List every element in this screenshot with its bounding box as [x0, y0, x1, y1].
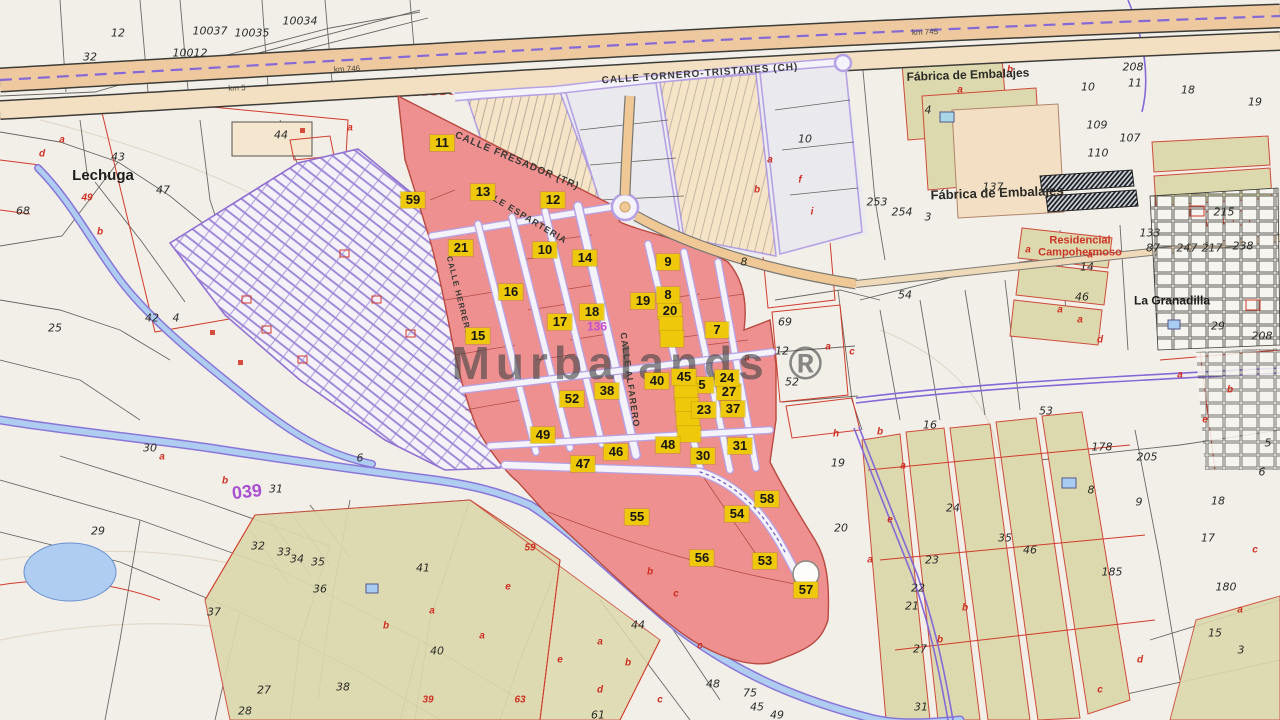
parcel-number: 34 — [290, 553, 304, 566]
subparcel-letter: b — [647, 567, 653, 578]
km-marker-label: km 746 — [334, 64, 361, 74]
parcel-label[interactable]: 54 — [725, 506, 749, 522]
place-label: Lechuga — [72, 168, 134, 184]
subparcel-letter: 49 — [81, 193, 92, 204]
parcel-label[interactable]: 21 — [449, 240, 473, 256]
parcel-label[interactable]: 37 — [721, 401, 745, 417]
subparcel-letter: c — [1097, 685, 1103, 696]
parcel-number: 16 — [923, 419, 937, 432]
parcel-number: 25 — [48, 322, 62, 335]
km-marker-label: km 5 — [228, 83, 246, 93]
subparcel-letter: c — [697, 641, 703, 652]
subparcel-letter: a — [767, 155, 773, 166]
parcel-label[interactable]: 58 — [755, 491, 779, 507]
parcel-label[interactable]: 15 — [466, 328, 490, 344]
parcel-number: 10034 — [283, 15, 318, 28]
subparcel-letter: 39 — [422, 695, 433, 706]
subparcel-letter: a — [479, 631, 485, 642]
parcel-label[interactable]: 13 — [471, 184, 495, 200]
subparcel-letter: a — [900, 461, 906, 472]
parcel-label[interactable]: 16 — [499, 284, 523, 300]
subparcel-letter: e — [505, 582, 511, 593]
parcel-number: 48 — [706, 678, 720, 691]
parcel-number: 208 — [1252, 330, 1273, 343]
parcel-number: 6 — [357, 452, 364, 465]
parcel-number: 31 — [269, 483, 283, 496]
parcel-number: 33 — [277, 546, 291, 559]
subparcel-letter: e — [887, 515, 893, 526]
parcel-label[interactable]: 47 — [571, 456, 595, 472]
subparcel-letter: b — [1227, 385, 1233, 396]
parcel-number: 5 — [1265, 437, 1272, 450]
subparcel-letter: i — [811, 207, 814, 218]
parcel-number: 11 — [1128, 77, 1142, 90]
parcel-number: 18 — [1211, 495, 1225, 508]
parcel-label[interactable]: 52 — [560, 391, 584, 407]
parcel-number: 27 — [913, 643, 927, 656]
parcel-label[interactable]: 53 — [753, 553, 777, 569]
parcel-label[interactable]: 17 — [548, 314, 572, 330]
subparcel-letter: c — [657, 695, 663, 706]
parcel-number: 3 — [925, 211, 932, 224]
parcel-number: 49 — [770, 709, 784, 720]
parcel-label[interactable]: 31 — [728, 438, 752, 454]
subparcel-letter: b — [937, 635, 943, 646]
subparcel-letter: b — [625, 658, 631, 669]
parcel-number: 69 — [778, 316, 792, 329]
parcel-number: 133 — [1140, 227, 1161, 240]
cadastral-map[interactable]: CALLE TORNERO-TRISTANES (CH)CALLE FRESAD… — [0, 0, 1280, 720]
parcel-label[interactable]: 19 — [631, 293, 655, 309]
parcel-number: 215 — [1214, 206, 1235, 219]
parcel-number: 10037 — [193, 25, 228, 38]
parcel-number: 28 — [238, 705, 252, 718]
parcel-number: 10035 — [235, 27, 270, 40]
parcel-number: 6 — [1259, 466, 1266, 479]
parcel-number: 10 — [1081, 81, 1095, 94]
parcel-number: 110 — [1088, 147, 1109, 160]
parcel-number: 205 — [1137, 451, 1158, 464]
parcel-number: 3 — [1238, 644, 1245, 657]
subparcel-letter: b — [877, 427, 883, 438]
parcel-number: 23 — [925, 554, 939, 567]
parcel-number: 47 — [156, 184, 170, 197]
parcel-label[interactable]: 12 — [541, 192, 565, 208]
parcel-number: 42 — [145, 312, 159, 325]
parcel-number: 107 — [1120, 132, 1141, 145]
parcel-number: 18 — [1181, 84, 1195, 97]
subparcel-letter: a — [347, 123, 353, 134]
parcel-number: 40 — [430, 645, 444, 658]
subparcel-letter: a — [1025, 245, 1031, 256]
subparcel-letter: b — [962, 603, 968, 614]
subparcel-letter: f — [798, 175, 801, 186]
parcel-number: 44 — [631, 619, 645, 632]
km-marker-label: km 745 — [912, 27, 939, 37]
parcel-number: 31 — [914, 701, 928, 714]
parcel-number: 44 — [274, 129, 288, 142]
subparcel-letter: a — [867, 555, 873, 566]
parcel-label[interactable]: 30 — [691, 448, 715, 464]
parcel-number: 35 — [311, 556, 325, 569]
parcel-label[interactable]: 10 — [533, 242, 557, 258]
parcel-label[interactable]: 11 — [430, 135, 454, 151]
parcel-number: 21 — [905, 600, 919, 613]
parcel-number: 24 — [946, 502, 960, 515]
parcel-label[interactable]: 14 — [573, 250, 597, 266]
parcel-label[interactable]: 24 — [715, 370, 739, 386]
parcel-number: 217 — [1202, 242, 1223, 255]
parcel-label[interactable]: 46 — [604, 444, 628, 460]
parcel-number: 4 — [173, 312, 180, 325]
parcel-label[interactable]: 40 — [645, 373, 669, 389]
parcel-number: 32 — [83, 51, 97, 64]
parcel-label[interactable]: 45 — [672, 369, 696, 385]
parcel-number: 253 — [867, 196, 888, 209]
subparcel-letter: e — [557, 655, 563, 666]
parcel-number: 53 — [1039, 405, 1053, 418]
parcel-number: 178 — [1092, 441, 1113, 454]
parcel-number: 4 — [925, 104, 932, 117]
subparcel-letter: b — [97, 227, 103, 238]
parcel-number: 46 — [1023, 544, 1037, 557]
parcel-label[interactable]: 38 — [595, 383, 619, 399]
parcel-label[interactable]: 57 — [794, 582, 818, 598]
parcel-number: 19 — [831, 457, 845, 470]
place-label: Residencial Campohermoso — [1038, 235, 1122, 258]
parcel-number: 68 — [16, 205, 30, 218]
parcel-label[interactable]: 23 — [692, 402, 716, 418]
parcel-number: 43 — [111, 151, 125, 164]
subparcel-letter: d — [1097, 335, 1103, 346]
parcel-number: 45 — [750, 701, 764, 714]
parcel-number: 14 — [1080, 261, 1094, 274]
subparcel-letter: d — [597, 685, 603, 696]
subparcel-letter: 59 — [524, 543, 535, 554]
parcel-number: 36 — [313, 583, 327, 596]
place-label: La Granadilla — [1134, 295, 1210, 308]
subparcel-letter: a — [1177, 370, 1183, 381]
parcel-number: 27 — [257, 684, 271, 697]
subparcel-letter: a — [429, 606, 435, 617]
parcel-number: 109 — [1087, 119, 1108, 132]
parcel-number: 10 — [798, 133, 812, 146]
parcel-number: 22 — [911, 582, 925, 595]
watermark: Murbalands ® — [452, 336, 829, 390]
subparcel-letter: e — [1202, 415, 1208, 426]
parcel-number: 208 — [1123, 61, 1144, 74]
parcel-number: 9 — [1136, 496, 1143, 509]
parcel-number: 17 — [1201, 532, 1215, 545]
subparcel-letter: a — [1077, 315, 1083, 326]
subparcel-letter: c — [849, 347, 855, 358]
parcel-number: 32 — [251, 540, 265, 553]
subparcel-letter: b — [383, 621, 389, 632]
subparcel-letter: h — [833, 429, 839, 440]
subparcel-letter: a — [59, 135, 65, 146]
subparcel-letter: 63 — [514, 695, 525, 706]
parcel-number: 38 — [336, 681, 350, 694]
parcel-number: 46 — [1075, 291, 1089, 304]
subparcel-letter: c — [1252, 545, 1258, 556]
parcel-label[interactable]: 49 — [531, 427, 555, 443]
subparcel-letter: a — [957, 85, 963, 96]
subparcel-letter: a — [159, 452, 165, 463]
parcel-number: 61 — [591, 709, 605, 720]
parcel-number: 8 — [1088, 484, 1095, 497]
subparcel-letter: b — [222, 476, 228, 487]
parcel-label[interactable]: 55 — [625, 509, 649, 525]
parcel-number: 54 — [898, 289, 912, 302]
parcel-number: 247 — [1177, 242, 1198, 255]
subparcel-letter: d — [39, 149, 45, 160]
subparcel-letter: a — [597, 637, 603, 648]
parcel-label[interactable]: 48 — [656, 437, 680, 453]
parcel-number: 75 — [743, 687, 757, 700]
parcel-label[interactable]: 27 — [717, 384, 741, 400]
parcel-number: 87 — [1146, 242, 1160, 255]
subparcel-letter: a — [1057, 305, 1063, 316]
parcel-label[interactable]: 56 — [690, 550, 714, 566]
parcel-number: 20 — [834, 522, 848, 535]
parcel-number: 29 — [91, 525, 105, 538]
parcel-number: 15 — [1208, 627, 1222, 640]
parcel-label[interactable]: 59 — [401, 192, 425, 208]
parcel-label[interactable]: 7 — [706, 322, 729, 338]
subparcel-letter: b — [754, 185, 760, 196]
subparcel-letter: a — [1237, 605, 1243, 616]
place-label: 039 — [231, 481, 263, 503]
parcel-number: 238 — [1233, 240, 1254, 253]
parcel-number: 30 — [143, 442, 157, 455]
place-label: 136 — [587, 321, 607, 334]
parcel-number: 8 — [741, 256, 748, 269]
parcel-number: 37 — [207, 606, 221, 619]
parcel-number: 29 — [1211, 320, 1225, 333]
parcel-label[interactable]: 8 — [657, 287, 680, 303]
subparcel-letter: d — [1137, 655, 1143, 666]
parcel-number: 185 — [1102, 566, 1123, 579]
parcel-number: 35 — [998, 532, 1012, 545]
parcel-label[interactable]: 18 — [580, 304, 604, 320]
parcel-number: 41 — [416, 562, 430, 575]
parcel-number: 12 — [111, 27, 125, 40]
parcel-label[interactable] — [661, 331, 684, 347]
subparcel-letter: c — [673, 589, 679, 600]
parcel-label[interactable]: 9 — [657, 254, 680, 270]
parcel-label[interactable] — [678, 426, 701, 442]
parcel-number: 180 — [1216, 581, 1237, 594]
parcel-number: 19 — [1248, 96, 1262, 109]
parcel-number: 254 — [892, 206, 913, 219]
parcel-number: 10012 — [173, 47, 208, 60]
